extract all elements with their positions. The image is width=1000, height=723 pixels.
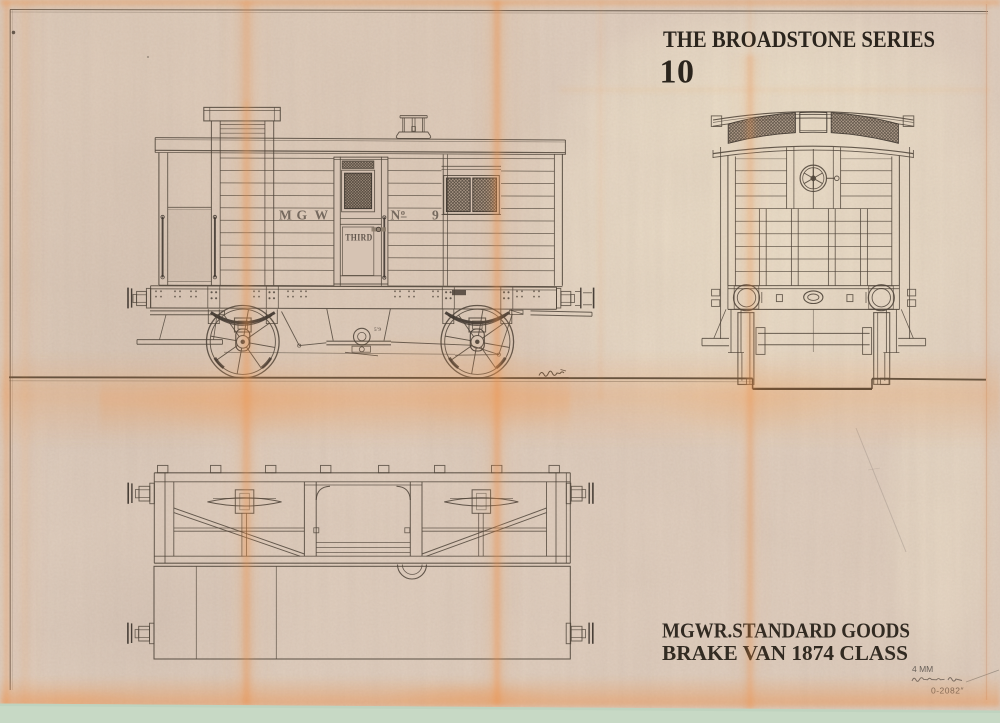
svg-text:THE BROADSTONE SERIES: THE BROADSTONE SERIES: [663, 27, 935, 53]
svg-text:M: M: [279, 208, 292, 223]
svg-text:BRAKE VAN 1874 CLASS: BRAKE VAN 1874 CLASS: [662, 641, 908, 665]
svg-text:N: N: [391, 208, 401, 223]
svg-text:G: G: [297, 208, 308, 223]
svg-text:4 MM: 4 MM: [912, 664, 933, 674]
svg-text:o: o: [401, 207, 405, 217]
svg-text:MGWR.STANDARD GOODS: MGWR.STANDARD GOODS: [662, 619, 910, 643]
svg-text:W: W: [315, 208, 329, 223]
svg-text:THIRD: THIRD: [345, 232, 373, 243]
svg-text:9: 9: [432, 208, 439, 223]
svg-text:10: 10: [660, 54, 695, 91]
svg-text:5'9: 5'9: [374, 327, 381, 333]
